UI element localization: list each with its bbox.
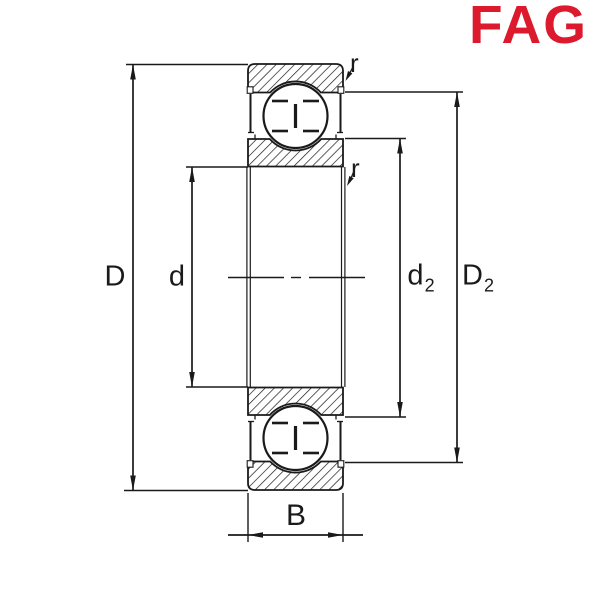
dimension-d — [189, 167, 195, 387]
d2-subscript: 2 — [425, 276, 435, 296]
D2-subscript: 2 — [484, 276, 494, 296]
dimension-label-D: D — [105, 263, 126, 292]
dimension-label-d2: d2 — [407, 262, 434, 295]
dimension-label-B: B — [286, 501, 306, 531]
dimension-label-d: d — [169, 263, 185, 292]
d2-base: d — [407, 260, 423, 292]
bearing-technical-drawing: D d d2 D2 r r B FAG — [0, 0, 600, 600]
dimension-d2 — [397, 139, 403, 418]
dimension-D2 — [454, 92, 460, 463]
radius-label-r-inner: r — [351, 155, 360, 181]
dimension-D — [130, 65, 136, 491]
fag-logo: FAG — [469, 3, 588, 47]
dimension-label-D2: D2 — [462, 262, 494, 295]
radius-label-r-outer: r — [350, 50, 359, 76]
bearing-cross-section — [228, 64, 365, 490]
D2-base: D — [462, 260, 483, 292]
